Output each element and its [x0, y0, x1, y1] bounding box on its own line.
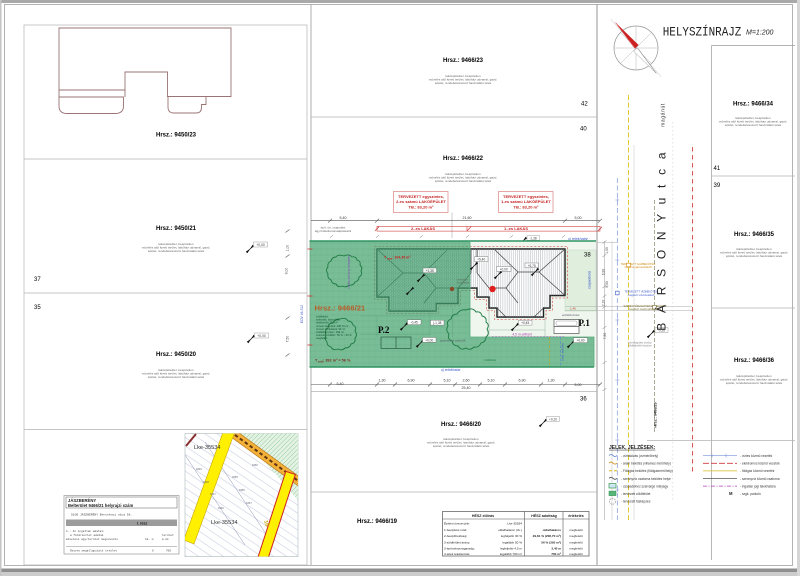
svg-text:5100 JÁSZBERÉNY Bercsényi utc: 5100 JÁSZBERÉNY Bercsényi utca 58. — [71, 513, 132, 517]
svg-text:Lke-35534: Lke-35534 — [194, 445, 220, 451]
svg-text:- tervezett zöldfelület: - tervezett zöldfelület — [621, 492, 651, 496]
svg-text:9457: 9457 — [246, 501, 252, 505]
svg-text:a földrészlet adatai: a földrészlet adatai — [70, 533, 104, 537]
svg-text:+5,40: +5,40 — [477, 258, 485, 262]
svg-text:1.- Az ingatlan adatai:: 1.- Az ingatlan adatai: — [66, 529, 105, 533]
svg-text:25,40: 25,40 — [462, 386, 471, 390]
svg-text:+0,00: +0,00 — [257, 334, 266, 338]
svg-text:Építési övezet jele:: Építési övezet jele: — [444, 521, 470, 526]
svg-text:+5,75: +5,75 — [528, 264, 536, 268]
svg-text:- áram bekötés (villamos mérőh: - áram bekötés (villamos mérőhely) — [621, 462, 671, 466]
svg-text:megfelelő: megfelelő — [569, 552, 583, 556]
svg-text:3-építménymagasság:: 3-építménymagasság: — [444, 547, 475, 551]
svg-text:épület, rendeltetésszerű haszn: épület, rendeltetésszerű használatú tele… — [435, 179, 492, 183]
svg-text:EOV 46-312: EOV 46-312 — [300, 305, 304, 323]
svg-text:- Földgáz bekötés (földgázmérő: - Földgáz bekötés (földgázmérőhely) — [621, 469, 673, 473]
svg-text:+0,10: +0,10 — [549, 417, 557, 421]
svg-text:700: 700 — [166, 550, 171, 553]
svg-text:Hrsz.: 9450/20: Hrsz.: 9450/20 — [156, 352, 197, 358]
svg-text:épület, rendeltetésszerű haszn: épület, rendeltetésszerű használatú tele… — [148, 375, 205, 379]
svg-text:40: 40 — [580, 127, 587, 133]
svg-text:épület, rendeltetésszerű haszn: épület, rendeltetésszerű használatú tele… — [435, 81, 492, 85]
svg-text:megfelelő: megfelelő — [569, 547, 583, 551]
svg-text:HELYSZÍNRAJZ: HELYSZÍNRAJZ — [663, 24, 742, 40]
svg-text:+1,35: +1,35 — [426, 269, 434, 273]
svg-text:+0,00: +0,00 — [425, 338, 433, 342]
svg-text:5,10: 5,10 — [488, 378, 495, 382]
svg-text:+0,45: +0,45 — [521, 321, 529, 325]
svg-text:2-beépíthetőség:: 2-beépíthetőség: — [444, 534, 467, 538]
svg-text:+0,00: +0,00 — [500, 267, 508, 271]
svg-text:2.-es LAKÁS: 2.-es LAKÁS — [411, 226, 435, 231]
svg-text:M=1:200: M=1:200 — [746, 30, 774, 37]
svg-text:oldalhatáron (zk.): oldalhatáron (zk.) — [498, 528, 522, 532]
svg-text:1-beépítési mód:: 1-beépítési mód: — [444, 528, 467, 532]
svg-text:5,00: 5,00 — [575, 383, 582, 387]
svg-text:- szennyvíz közmű csatorna: - szennyvíz közmű csatorna — [740, 477, 780, 481]
svg-text:- tervezett fásképzés: - tervezett fásképzés — [621, 500, 651, 504]
svg-text:1,00: 1,00 — [605, 247, 609, 254]
svg-text:P.2: P.2 — [378, 325, 390, 335]
svg-text:HÉSZ adottság: HÉSZ adottság — [531, 513, 557, 518]
svg-text:: 392 m² = 56 %: : 392 m² = 56 % — [323, 359, 351, 363]
svg-text:9448: 9448 — [203, 480, 209, 484]
svg-text:magánút: magánút — [661, 103, 667, 127]
svg-text:agyl kölesbetonalapástatni: agyl kölesbetonalapástatni — [315, 229, 352, 233]
svg-text:38: 38 — [584, 253, 591, 259]
svg-text:- vízies közmű vezeték: - vízies közmű vezeték — [740, 454, 773, 458]
svg-text:1.-es LAKÁS: 1.-es LAKÁS — [504, 226, 528, 231]
svg-text:megfelelő: megfelelő — [569, 534, 583, 538]
svg-text:aszfaltburkolat: aszfaltburkolat — [562, 313, 580, 317]
svg-text:Hrsz.: 9466/21: Hrsz.: 9466/21 — [315, 304, 366, 313]
svg-text:1,46: 1,46 — [570, 306, 576, 310]
svg-text:4-telek telekterület:: 4-telek telekterület: — [444, 552, 470, 556]
svg-text:-0,45: -0,45 — [411, 321, 418, 325]
svg-text:oldalhatáros: oldalhatáros — [543, 528, 562, 532]
svg-text:3-zöldfelület arány:: 3-zöldfelület arány: — [444, 540, 470, 544]
svg-text:- ingatlan jogi telekhatára: - ingatlan jogi telekhatára — [740, 484, 776, 488]
svg-text:5,40: 5,40 — [340, 216, 347, 220]
svg-text:Hrsz.: 9466/20: Hrsz.: 9466/20 — [441, 422, 482, 428]
svg-text:35: 35 — [34, 305, 41, 311]
svg-text:1,30: 1,30 — [548, 378, 555, 382]
svg-text:megfelelő: megfelelő — [569, 528, 583, 532]
svg-text:+0,00: +0,00 — [256, 243, 265, 247]
svg-text:csap. bekötés: csap. bekötés — [561, 343, 565, 361]
svg-text:új telekhatár: új telekhatár — [441, 368, 461, 372]
svg-text:Hrsz.: 9466/36: Hrsz.: 9466/36 — [734, 358, 775, 364]
svg-text:épület, rendeltetésszerű haszn: épület, rendeltetésszerű használatú tele… — [433, 444, 490, 448]
svg-text:9456: 9456 — [239, 488, 245, 492]
svg-text:700 m²: 700 m² — [551, 552, 561, 556]
svg-text:9,00: 9,00 — [605, 281, 609, 288]
svg-text:zöldfelület: zöldfelület — [484, 358, 496, 362]
svg-text:5,10: 5,10 — [444, 378, 451, 382]
svg-text:Hrsz.: 9466/35: Hrsz.: 9466/35 — [734, 232, 775, 238]
svg-text:21,60: 21,60 — [463, 216, 472, 220]
svg-text:Összes megállapított terület: Összes megállapított terület — [70, 549, 117, 553]
svg-text:Hrsz.: 9450/21: Hrsz.: 9450/21 — [156, 226, 197, 232]
svg-text:6,90: 6,90 — [408, 378, 415, 382]
svg-text:9466: 9466 — [252, 463, 258, 467]
svg-text:39: 39 — [714, 183, 721, 189]
svg-text:41: 41 — [714, 166, 721, 172]
svg-text:HÉSZ előírás: HÉSZ előírás — [472, 513, 494, 518]
svg-text:56 % (392 m²): 56 % (392 m²) — [541, 540, 561, 544]
svg-text:1-es számú LAKÓÉPÜLET: 1-es számú LAKÓÉPÜLET — [501, 199, 551, 204]
svg-text:épület, rendeltetésszerű haszn: épület, rendeltetésszerű használatú tele… — [725, 123, 782, 127]
svg-text:Belterület 9466/21 helyrajzi s: Belterület 9466/21 helyrajzi szám — [68, 503, 133, 508]
svg-text:5,40: 5,40 — [337, 382, 344, 386]
svg-text:1,00: 1,00 — [286, 245, 290, 252]
svg-text:Hrsz.: 9450/23: Hrsz.: 9450/23 — [156, 133, 197, 139]
svg-text:-1,38: -1,38 — [529, 236, 536, 240]
svg-text:gyeprácsos parkolók: gyeprácsos parkolók — [440, 339, 466, 343]
svg-text:2,10: 2,10 — [602, 300, 606, 307]
svg-text:9447: 9447 — [210, 492, 216, 496]
svg-text:TB.: 83,20 m²: TB.: 83,20 m² — [514, 205, 540, 210]
svg-text:Lke-35534: Lke-35534 — [211, 520, 237, 526]
svg-text:9449: 9449 — [196, 467, 202, 471]
svg-text:értékelés: értékelés — [568, 514, 584, 518]
svg-text:3,45 m: 3,45 m — [551, 547, 561, 551]
svg-text:7,50: 7,50 — [286, 336, 290, 343]
svg-text:29,81 % (208,70 m²): 29,81 % (208,70 m²) — [533, 534, 561, 538]
svg-text:- szgk. parkoló: - szgk. parkoló — [740, 492, 761, 496]
svg-text:Hrsz.: 9466/29: Hrsz.: 9466/29 — [654, 402, 658, 427]
svg-text:TB.: 83,20 m²: TB.: 83,20 m² — [409, 205, 435, 210]
svg-text:P.1: P.1 — [579, 318, 591, 328]
svg-text:I. rész: I. rész — [137, 521, 147, 525]
svg-text:földkábellel kiépítve: földkábellel kiépítve — [628, 344, 652, 348]
svg-text:meglévő vízvezetékről: meglévő vízvezetékről — [628, 293, 655, 297]
svg-text:Hrsz.: 9466/34: Hrsz.: 9466/34 — [733, 102, 774, 108]
svg-text:épület, rendeltetésszerű haszn: épület, rendeltetésszerű használatú tele… — [148, 249, 205, 253]
svg-text:M: M — [729, 491, 733, 496]
svg-text:37: 37 — [34, 277, 41, 283]
svg-text:ha. m: ha. m — [145, 537, 154, 541]
svg-text:tisztítóakna: tisztítóakna — [457, 281, 470, 284]
svg-text:42: 42 — [581, 102, 588, 108]
svg-text:14 fm sövény telepítés: 14 fm sövény telepítés — [347, 255, 351, 289]
svg-text:Hrsz.: 9466/22: Hrsz.: 9466/22 — [443, 156, 484, 162]
svg-text:1,30: 1,30 — [379, 378, 386, 382]
svg-text:- vízhálózás (vízmérőhely): - vízhálózás (vízmérőhely) — [621, 454, 658, 458]
svg-text:- szennyvíz csatorna bekötés h: - szennyvíz csatorna bekötés helye — [621, 477, 671, 481]
svg-text:legfeljebb 4,5 m: legfeljebb 4,5 m — [500, 547, 522, 551]
svg-text:2,60: 2,60 — [463, 378, 470, 382]
svg-text:legalább 50 %: legalább 50 % — [502, 540, 522, 544]
svg-text:megfelelő: megfelelő — [316, 336, 328, 340]
svg-text:Hrsz.: 9466/19: Hrsz.: 9466/19 — [357, 519, 398, 525]
svg-text:művelési ágy/terület megnevezé: művelési ágy/terület megnevezés — [66, 537, 118, 541]
svg-text:épület, rendeltetésszerű haszn: épület, rendeltetésszerű használatú tele… — [726, 381, 783, 385]
svg-text:6,90: 6,90 — [519, 378, 526, 382]
svg-text:: 104,35 m²: : 104,35 m² — [392, 256, 411, 260]
svg-text:megfelelő: megfelelő — [569, 540, 583, 544]
svg-text:legfeljebb 30 %: legfeljebb 30 % — [501, 534, 522, 538]
svg-text:- csapadékvíz szeivárgó mélyág: - csapadékvíz szeivárgó mélyágy — [621, 484, 668, 488]
svg-text:- földgáz közmű vezeték: - földgáz közmű vezeték — [740, 469, 775, 473]
svg-text:36: 36 — [580, 397, 587, 403]
svg-text:(-1,38: (-1,38 — [433, 321, 442, 325]
svg-text:B Á R S O N Y u t c a: B Á R S O N Y u t c a — [654, 149, 669, 330]
svg-text:m.ök: m.ök — [162, 537, 169, 541]
svg-text:csapadékvíz: csapadékvíz — [588, 270, 592, 289]
svg-text:Hrsz.: 9466/23: Hrsz.: 9466/23 — [443, 58, 484, 64]
svg-text:terület: terület — [162, 533, 174, 537]
svg-text:9,00: 9,00 — [285, 268, 289, 275]
svg-text:2-es számú LAKÓÉPÜLET: 2-es számú LAKÓÉPÜLET — [396, 199, 446, 204]
svg-text:JELEK, JELZÉSEK:: JELEK, JELZÉSEK: — [609, 443, 656, 451]
svg-text:+0,00: +0,00 — [576, 339, 584, 343]
svg-text:- elektromos közmű vezeték: - elektromos közmű vezeték — [740, 462, 780, 466]
svg-text:9455: 9455 — [232, 475, 238, 479]
svg-text:4,5 m előkert: 4,5 m előkert — [512, 332, 533, 336]
svg-text:9446: 9446 — [218, 506, 224, 510]
svg-text:6,90: 6,90 — [602, 269, 606, 276]
svg-text:legalább 700 m²: legalább 700 m² — [500, 552, 522, 556]
svg-text:épület, rendeltetésszerű haszn: épület, rendeltetésszerű használatú tele… — [726, 254, 783, 258]
svg-text:7,50: 7,50 — [603, 333, 607, 340]
svg-text:Lke-35534: Lke-35534 — [507, 522, 522, 526]
svg-text:5,00: 5,00 — [575, 216, 582, 220]
